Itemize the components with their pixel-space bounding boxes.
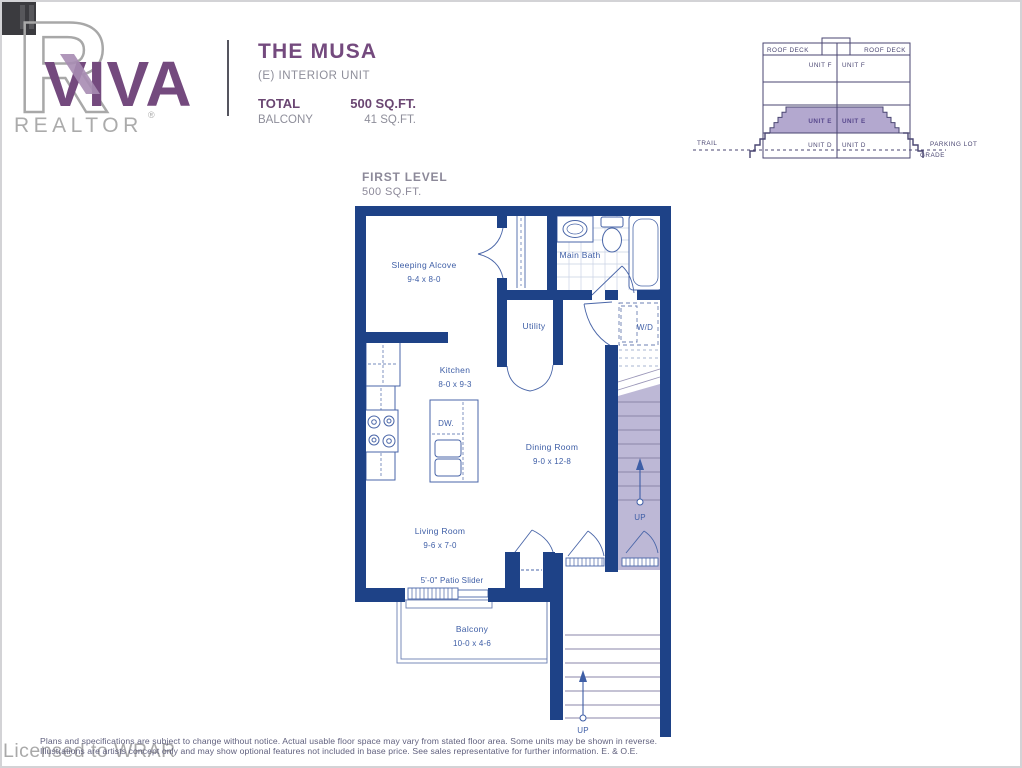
- patio-slider-label: 5'-0" Patio Slider: [421, 576, 484, 585]
- parking-lot-label: PARKING LOT: [930, 141, 977, 148]
- balcony-value: 41 SQ.FT.: [364, 114, 416, 126]
- wd-door: [584, 302, 612, 346]
- balcony-label: BALCONY: [258, 114, 313, 126]
- level-area: 500 SQ.FT.: [362, 186, 447, 198]
- bathtub: [629, 215, 662, 290]
- living-room-dims: 9-6 x 7-0: [423, 541, 457, 550]
- disclaimer: Plans and specifications are subject to …: [40, 737, 990, 757]
- area-summary: TOTAL 500 SQ.FT. BALCONY 41 SQ.FT.: [258, 96, 416, 126]
- alcove-french-doors: [478, 228, 503, 278]
- island-sink-2: [435, 459, 461, 476]
- registered-symbol: ®: [148, 110, 155, 120]
- title-block: THE MUSA (E) INTERIOR UNIT TOTAL 500 SQ.…: [258, 40, 416, 126]
- floor-plan: Sleeping Alcove 9-4 x 8-0 Main Bath Util…: [350, 200, 685, 745]
- main-bath-label: Main Bath: [560, 250, 601, 260]
- header-divider: [227, 40, 229, 116]
- unit-d-left-label: UNIT D: [808, 142, 832, 149]
- unit-e-left-label: UNIT E: [808, 118, 832, 125]
- left-steps: [750, 133, 770, 158]
- dw-label: DW.: [438, 419, 454, 428]
- closet-sliding-doors: [517, 216, 525, 288]
- floor-plan-page: { "header": { "viva": "VIVA", "realtor":…: [0, 0, 1022, 768]
- wd-label: W/D: [637, 323, 653, 332]
- level-block: FIRST LEVEL 500 SQ.FT.: [362, 170, 447, 198]
- level-title: FIRST LEVEL: [362, 170, 447, 184]
- unit-f-right-label: UNIT F: [842, 62, 865, 69]
- realtor-wordmark: REALTOR: [14, 114, 143, 137]
- sleeping-alcove-dims: 9-4 x 8-0: [407, 275, 441, 284]
- up-interior-label: UP: [634, 513, 646, 522]
- dining-room-label: Dining Room: [526, 442, 578, 452]
- kitchen-label: Kitchen: [440, 365, 470, 375]
- plan-name: THE MUSA: [258, 40, 416, 64]
- utility-label: Utility: [523, 321, 546, 331]
- balcony-dims: 10-0 x 4-6: [453, 639, 491, 648]
- roof-bulkhead: [822, 38, 850, 55]
- island-sink-1: [435, 440, 461, 457]
- unit-e-right-label: UNIT E: [842, 118, 866, 125]
- total-value: 500 SQ.FT.: [350, 96, 416, 111]
- kitchen-dims: 8-0 x 9-3: [438, 380, 472, 389]
- kitchen-fixtures: [365, 342, 478, 482]
- roof-deck-left-label: ROOF DECK: [767, 47, 809, 54]
- island: [430, 400, 478, 482]
- grade-label: GRADE: [920, 152, 945, 159]
- exterior-stairs: [565, 635, 660, 721]
- unit-f-left-label: UNIT F: [809, 62, 832, 69]
- viva-realtor-logo: R VIVA REALTOR ®: [2, 2, 234, 142]
- living-room-label: Living Room: [415, 526, 466, 536]
- unit-type: (E) INTERIOR UNIT: [258, 70, 416, 82]
- section-outline: [693, 38, 946, 158]
- patio-slider: [408, 588, 488, 599]
- utility-double-doors: [507, 365, 553, 391]
- toilet-tank: [601, 217, 623, 227]
- sink-basin: [563, 221, 587, 238]
- sleeping-alcove-label: Sleeping Alcove: [392, 260, 457, 270]
- unit-d-right-label: UNIT D: [842, 142, 866, 149]
- toilet-bowl: [603, 228, 622, 252]
- trail-label: TRAIL: [697, 140, 717, 147]
- entry-door-left: [568, 531, 604, 556]
- up-exterior-label: UP: [577, 726, 589, 735]
- total-label: TOTAL: [258, 96, 300, 111]
- building-cross-section: ROOF DECK ROOF DECK UNIT F UNIT F UNIT E…: [688, 28, 1022, 168]
- disclaimer-line-2: Illustrations are artists concept only a…: [40, 747, 990, 757]
- roof-deck-right-label: ROOF DECK: [864, 47, 906, 54]
- balcony-label: Balcony: [456, 624, 489, 634]
- dining-room-dims: 9-0 x 12-8: [533, 457, 571, 466]
